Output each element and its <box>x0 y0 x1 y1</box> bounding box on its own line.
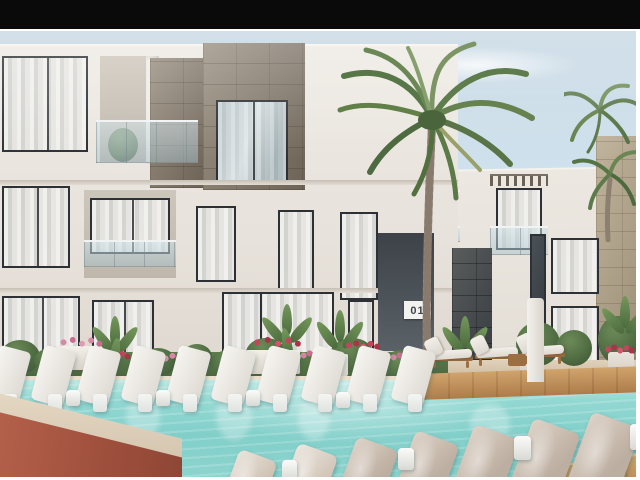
deck-side-table <box>508 354 526 366</box>
pool-side-table <box>514 436 531 460</box>
flower-cluster <box>604 344 634 356</box>
window-mid <box>196 206 236 282</box>
terracotta-planter <box>0 386 182 480</box>
palm-tree-tall <box>332 36 536 368</box>
pool-side-table <box>398 448 414 470</box>
lounger-pedestal <box>408 394 422 412</box>
lounger-pedestal <box>273 394 287 412</box>
lounger-pedestal <box>318 394 332 412</box>
top-divider-line <box>0 29 640 31</box>
fountain-pillar <box>527 298 544 382</box>
pool-side-table <box>336 392 350 408</box>
top-letterbox-bar <box>0 0 640 29</box>
right-wing-window <box>551 238 599 294</box>
balcony-glass-rail <box>84 240 176 267</box>
lounger-pedestal <box>183 394 197 412</box>
architectural-render-page: { "plaque": { "number": "01" }, "palette… <box>0 0 640 480</box>
pool-side-table <box>246 390 260 406</box>
lounger-pedestal <box>363 394 377 412</box>
pool-courtyard-render: 01 <box>0 0 640 480</box>
window-mid-left <box>2 186 70 268</box>
right-margin <box>636 29 640 480</box>
lounger-pedestal <box>228 394 242 412</box>
atmospheric-haze <box>0 29 640 159</box>
